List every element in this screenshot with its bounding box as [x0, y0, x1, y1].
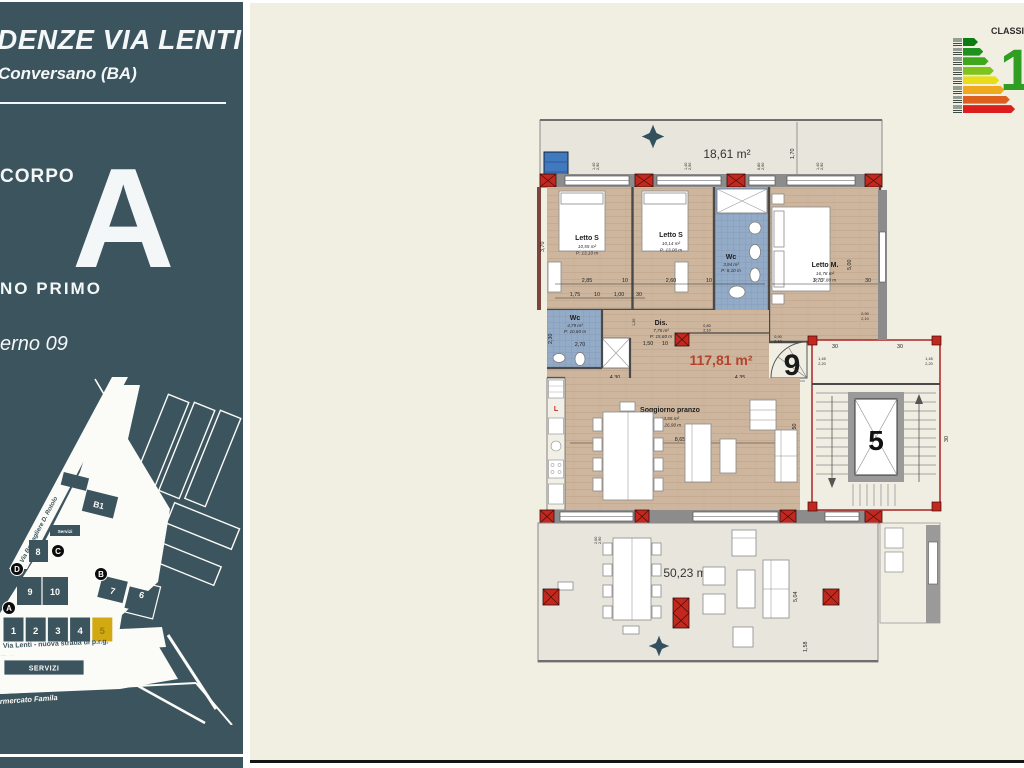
svg-text:3,70: 3,70 — [813, 278, 824, 284]
energy-bar — [953, 105, 1015, 113]
letto-m-name: Letto M. — [812, 262, 839, 269]
svg-text:0,80: 0,80 — [703, 324, 710, 328]
toilet — [750, 245, 761, 260]
kitchen-sink — [551, 441, 561, 451]
svg-text:10: 10 — [662, 341, 668, 347]
brochure-page: { "colors": { "sidebar_bg": "#3C545E", "… — [0, 0, 1024, 768]
building-9-label: 9 — [27, 587, 32, 597]
site-map: Via Bersagliere D. Rotolo B1 Servizi 8 9… — [0, 377, 243, 725]
svg-text:16,78 m²: 16,78 m² — [816, 271, 835, 276]
energy-class-title: CLASSI — [991, 26, 1024, 36]
wc-top-name: Wc — [726, 254, 737, 261]
unit-1: 1 — [11, 626, 17, 637]
energy-class-label: CLASSI 1 — [953, 26, 1024, 122]
svg-text:5,04: 5,04 — [793, 592, 799, 603]
dim-170: 1,70 — [790, 149, 796, 160]
svg-text:P: 13,00 m: P: 13,00 m — [660, 248, 682, 253]
svg-text:1,50: 1,50 — [643, 341, 654, 347]
floor-plan: 18,61 m² 1,70 1,40 2,90 1,40 2,90 0,80 2… — [535, 112, 955, 668]
building-10-label: 10 — [50, 587, 60, 597]
svg-text:10,14 m²: 10,14 m² — [662, 241, 681, 246]
svg-text:0,90: 0,90 — [861, 312, 868, 316]
letto-s2-name: Letto S — [659, 232, 683, 239]
dining-set — [593, 402, 663, 500]
sidebar-footer — [0, 757, 243, 768]
total-area: 117,81 m² — [689, 352, 752, 368]
unit-3: 3 — [55, 626, 60, 637]
unit-4: 4 — [77, 626, 83, 637]
sidebar-divider — [0, 102, 226, 104]
svg-text:2,60: 2,60 — [666, 278, 677, 284]
svg-text:P: 15,60 m: P: 15,60 m — [650, 334, 672, 339]
svg-text:2,10: 2,10 — [774, 340, 781, 344]
corpo-label: CORPO — [0, 166, 75, 188]
svg-text:1,45: 1,45 — [818, 357, 825, 361]
panel-bottom-rule — [250, 760, 1024, 763]
svg-text:4,79 m²: 4,79 m² — [567, 323, 583, 328]
marker-a: A — [6, 604, 12, 613]
familia-label: rmercato Famila — [0, 693, 58, 706]
svg-text:2,20: 2,20 — [925, 362, 932, 366]
svg-text:3,70: 3,70 — [540, 242, 546, 253]
svg-text:1,45: 1,45 — [925, 357, 932, 361]
svg-text:2,90: 2,90 — [688, 163, 692, 170]
svg-text:2,10: 2,10 — [703, 329, 710, 333]
svg-text:10: 10 — [706, 278, 712, 284]
project-title: DENZE VIA LENTI — [0, 24, 241, 56]
terrace-bottom: 50,23 m² — [538, 523, 878, 662]
svg-text:8,65: 8,65 — [675, 437, 686, 443]
sidebar: DENZE VIA LENTI Conversano (BA) CORPO A … — [0, 2, 243, 754]
servizi-box-label: SERVIZI — [29, 666, 60, 673]
corpo-letter: A — [72, 148, 175, 290]
svg-text:P: 10,60 m: P: 10,60 m — [564, 329, 586, 334]
svg-text:10: 10 — [594, 292, 600, 298]
svg-text:1,20: 1,20 — [632, 319, 636, 326]
elevator: 5 — [848, 392, 904, 482]
svg-text:1,75: 1,75 — [570, 292, 581, 298]
marker-b: B — [98, 570, 104, 579]
svg-text:5,00: 5,00 — [847, 260, 853, 271]
living-room: L Soggiorno pranzo 43,55 m² P: 26,90 m 8… — [547, 378, 800, 510]
stairwell: 5 30 30 1,45 2,20 1,45 2,20 30 0,90 2,10 — [808, 312, 950, 511]
svg-text:2,90: 2,90 — [598, 537, 602, 544]
svg-text:1,58: 1,58 — [803, 642, 809, 653]
wall-bottom — [540, 510, 882, 523]
letto-s1-name: Letto S — [575, 235, 599, 242]
kitchen-letter: L — [554, 406, 559, 413]
svg-text:P: 13,10 m: P: 13,10 m — [576, 251, 598, 256]
unit-2: 2 — [33, 626, 38, 637]
svg-text:2,70: 2,70 — [575, 342, 586, 348]
svg-text:2,20: 2,20 — [818, 362, 825, 366]
svg-text:7,75 m²: 7,75 m² — [653, 328, 669, 333]
svg-text:10,55 m²: 10,55 m² — [578, 244, 597, 249]
floor-label: NO PRIMO — [0, 279, 102, 299]
dis-name: Dis. — [655, 320, 668, 327]
svg-text:2,90: 2,90 — [596, 163, 600, 170]
unit-number: 9 — [784, 349, 801, 382]
sink — [553, 354, 565, 363]
bathroom-top — [715, 187, 769, 310]
unit-5: 5 — [100, 626, 106, 637]
svg-text:2,90: 2,90 — [820, 163, 824, 170]
svg-text:P: 8,10 m: P: 8,10 m — [721, 268, 741, 273]
svg-text:2,30: 2,30 — [548, 334, 554, 345]
toilet — [575, 353, 585, 366]
terrace-top-area: 18,61 m² — [703, 147, 750, 161]
kitchen-column: L — [547, 378, 565, 510]
svg-text:2,10: 2,10 — [861, 317, 868, 321]
svg-text:30: 30 — [897, 344, 903, 350]
middle-band: Wc 4,79 m² P: 10,60 m 2,70 2,30 Dis. 7,7… — [547, 310, 807, 382]
marker-d: D — [14, 565, 20, 574]
servizi-small-label: Servizi — [58, 529, 73, 534]
unit-label: erno 09 — [0, 333, 68, 356]
wc-entry-name: Wc — [570, 315, 581, 322]
building-8-label: 8 — [35, 547, 40, 557]
svg-text:43,55 m²: 43,55 m² — [661, 416, 680, 421]
svg-text:2,90: 2,90 — [761, 163, 765, 170]
svg-text:30: 30 — [865, 278, 871, 284]
stair-number: 5 — [868, 425, 884, 456]
svg-text:3,94 m²: 3,94 m² — [723, 262, 739, 267]
energy-class-digit: 1 — [1000, 42, 1024, 100]
svg-text:1,00: 1,00 — [614, 292, 625, 298]
svg-text:30: 30 — [944, 436, 950, 442]
svg-text:2,85: 2,85 — [582, 278, 593, 284]
bidet — [750, 268, 760, 282]
sink — [749, 222, 761, 234]
marker-c: C — [55, 547, 61, 556]
svg-text:30: 30 — [636, 292, 642, 298]
svg-text:0,90: 0,90 — [774, 335, 781, 339]
svg-text:30: 30 — [832, 344, 838, 350]
svg-text:10: 10 — [622, 278, 628, 284]
project-location: Conversano (BA) — [0, 64, 137, 84]
